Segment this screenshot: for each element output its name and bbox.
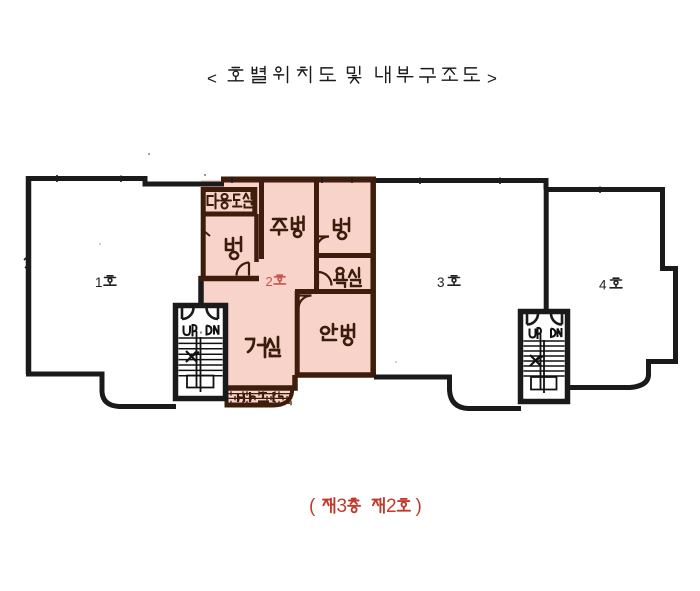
svg-text:>: >	[487, 69, 497, 88]
svg-text:3: 3	[437, 275, 445, 290]
svg-text:): )	[416, 496, 422, 517]
svg-text:2: 2	[386, 496, 397, 517]
svg-text:(: (	[309, 496, 316, 517]
svg-text:3: 3	[337, 496, 348, 517]
svg-text:<: <	[207, 69, 217, 88]
svg-text:2: 2	[266, 274, 273, 289]
svg-text:1: 1	[95, 275, 103, 290]
svg-text:4: 4	[599, 278, 607, 293]
